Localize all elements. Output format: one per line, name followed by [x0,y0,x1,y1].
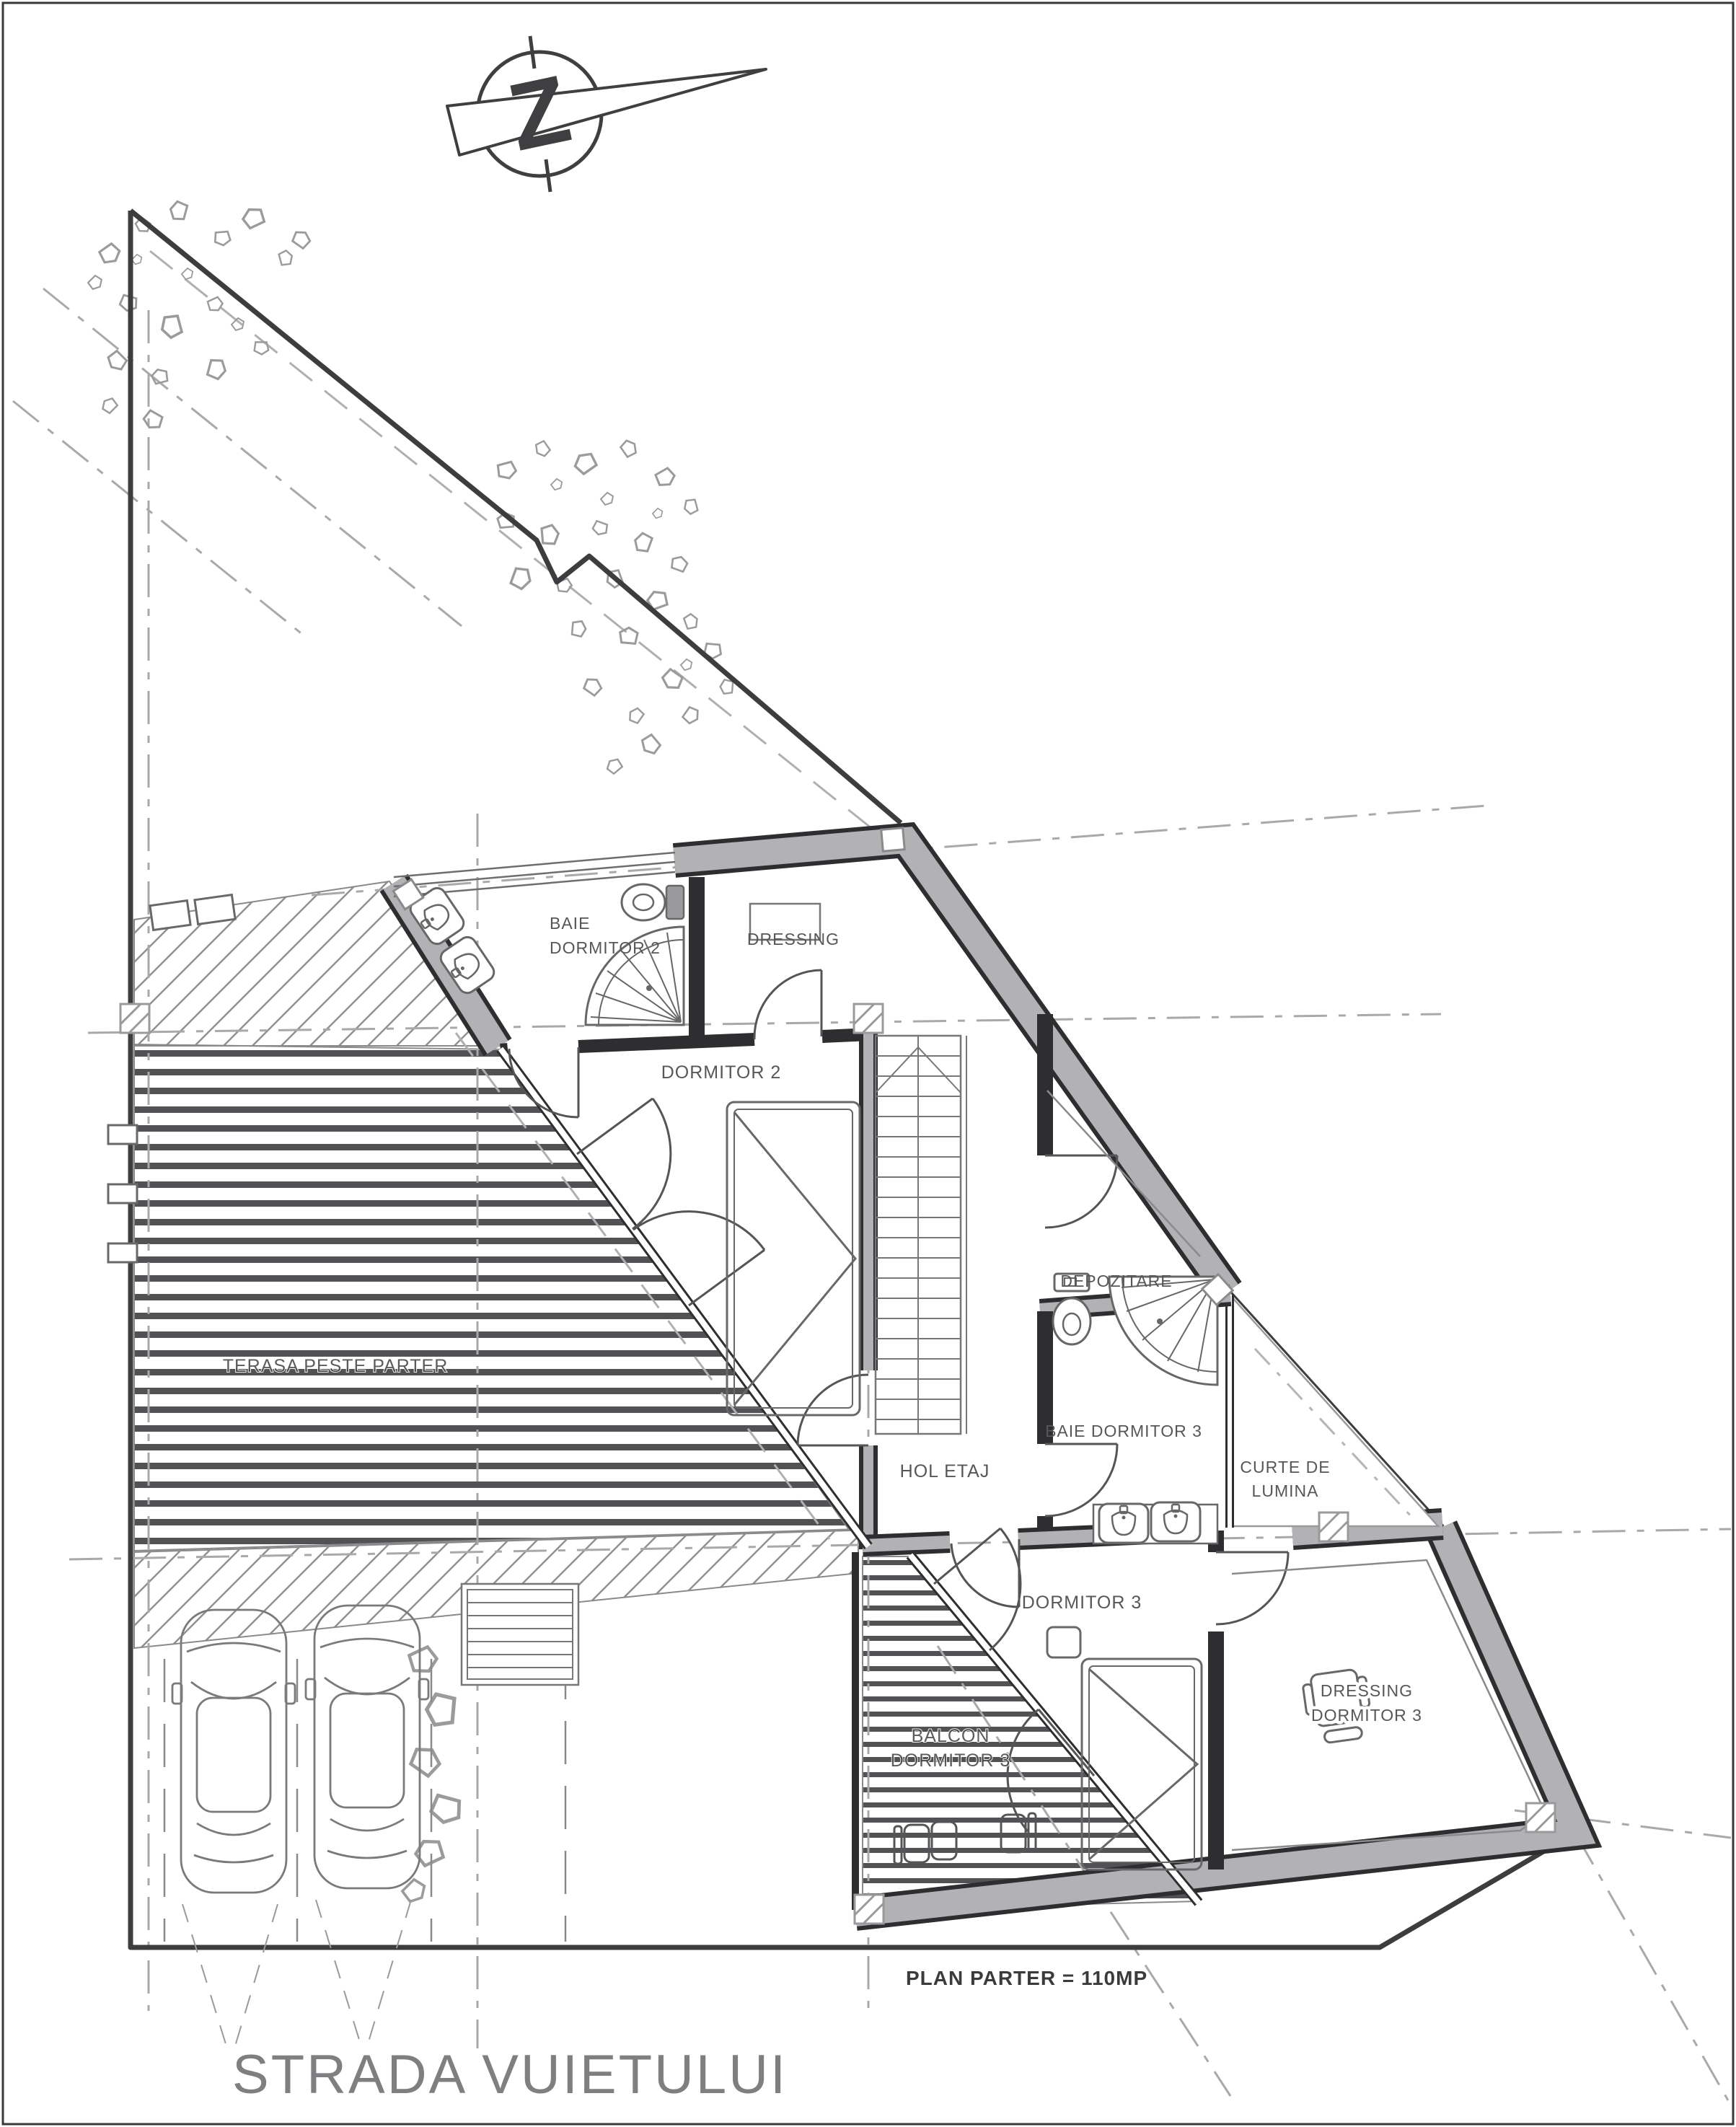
label-dressing: DRESSING [747,930,840,948]
dressing3-counter-outline [1232,1560,1545,1850]
understair-slope-line [1047,1091,1200,1256]
floorplan-drawing: Z BAIE DORMITOR 2 DRESSING DORMITOR 2 DE… [0,0,1736,2127]
shower-baie-3 [1109,1277,1217,1385]
bed-dormitor-2 [727,1102,860,1415]
label-balcon-line1: BALCON [912,1726,990,1746]
label-dormitor-3: DORMITOR 3 [1022,1593,1142,1613]
label-terasa: TERASA PESTE PARTER [223,1356,449,1376]
car-2 [306,1606,428,1888]
car-1 [172,1610,295,1893]
label-balcon-line2: DORMITOR 3 [891,1751,1011,1771]
label-dormitor-2: DORMITOR 2 [661,1062,782,1083]
trees-cluster-northwest [88,198,311,431]
sink-baie3-1 [1099,1504,1148,1543]
label-curte-line2: LUMINA [1252,1481,1319,1500]
trees-cluster-middle [493,440,738,775]
staircase [876,1036,966,1434]
sink-baie3-2 [1151,1502,1200,1541]
label-dressing3-line2: DORMITOR 3 [1311,1706,1422,1725]
label-hol-etaj: HOL ETAJ [900,1461,990,1481]
label-dressing3-line1: DRESSING [1321,1681,1413,1700]
parking-area [164,1584,578,2056]
street-name: STRADA VUIETULUI [232,2044,788,2105]
label-curte-line1: CURTE DE [1240,1458,1330,1476]
label-baie-dormitor-3: BAIE DORMITOR 3 [1045,1422,1202,1440]
north-arrow: Z [447,36,766,192]
shrubs-near-balcony [402,1642,467,1902]
louver-planter [462,1584,578,1685]
plan-area-note: PLAN PARTER = 110MP [906,1967,1147,1989]
toilet-baie-2 [622,884,684,920]
label-baie-dormitor2-line2: DORMITOR 2 [550,938,661,957]
north-letter: Z [500,55,578,171]
label-baie-dormitor2-line1: BAIE [550,914,590,933]
floorplan-sheet: Z BAIE DORMITOR 2 DRESSING DORMITOR 2 DE… [0,0,1736,2127]
label-depozitare: DEPOZITARE [1060,1272,1172,1290]
